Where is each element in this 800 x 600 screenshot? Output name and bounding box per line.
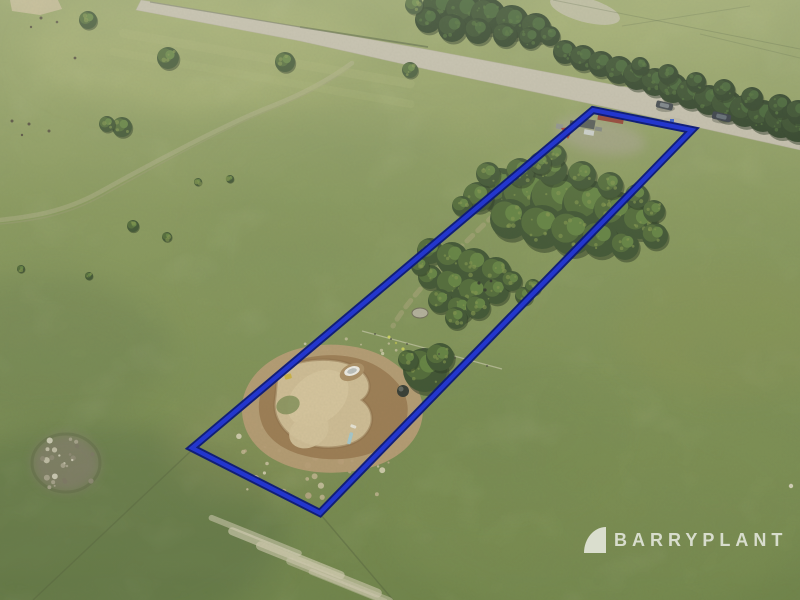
barry-plant-brand-text: BARRYPLANT (614, 527, 787, 553)
barry-plant-watermark: BARRYPLANT (584, 527, 787, 553)
barry-plant-logo-icon (584, 527, 606, 553)
aerial-photo-canvas (0, 0, 800, 600)
aerial-property-photo: BARRYPLANT (0, 0, 800, 600)
atmospheric-haze (0, 0, 800, 600)
